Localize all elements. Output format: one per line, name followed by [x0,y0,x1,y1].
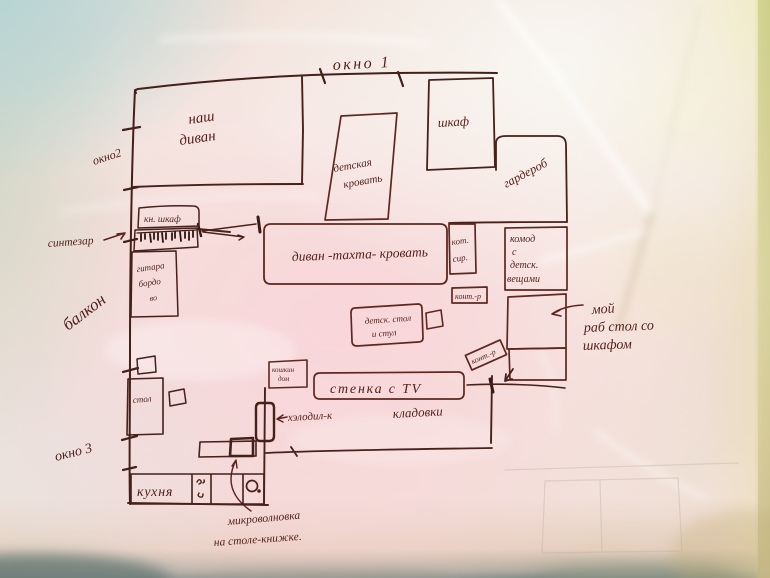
svg-text:и стул: и стул [371,327,396,339]
svg-text:шкафом: шкафом [583,337,632,354]
svg-text:окно 1: окно 1 [332,54,391,74]
svg-text:вещами: вещами [507,274,540,285]
svg-text:кухня: кухня [137,485,173,500]
svg-text:сир.: сир. [452,252,468,264]
svg-text:окно2: окно2 [91,145,123,167]
svg-text:хэлодил-к: хэлодил-к [287,410,334,424]
svg-text:на столе-книжке.: на столе-книжке. [213,531,302,549]
svg-text:наш: наш [187,108,215,127]
svg-text:кровать: кровать [342,172,383,191]
svg-text:кот.: кот. [451,235,469,247]
svg-text:конт.-р: конт.-р [455,292,481,301]
svg-text:гардероб: гардероб [501,155,550,190]
svg-text:с: с [512,247,517,258]
svg-text:детск.: детск. [510,260,538,271]
svg-text:комод: комод [510,234,535,245]
svg-text:детская: детская [332,156,372,175]
svg-text:кошкин: кошкин [272,366,295,374]
svg-text:шкаф: шкаф [437,113,469,130]
svg-text:детск. стол: детск. стол [364,313,411,326]
svg-text:бордо: бордо [138,276,162,289]
svg-text:раб стол со: раб стол со [583,319,654,336]
svg-text:гитара: гитара [136,260,166,274]
svg-text:стол: стол [132,393,152,405]
svg-text:кн. шкаф: кн. шкаф [144,214,181,225]
svg-text:диван: диван [178,128,216,149]
svg-text:мой: мой [590,301,615,318]
svg-text:окно 3: окно 3 [53,441,94,465]
svg-text:балкон: балкон [59,290,109,334]
svg-text:во: во [149,293,158,303]
svg-text:стенка с TV: стенка с TV [330,382,422,397]
svg-text:микроволновка: микроволновка [226,510,301,528]
svg-text:синтезар: синтезар [47,235,94,250]
svg-text:диван -тахта- кровать: диван -тахта- кровать [292,244,429,264]
svg-text:конт.-р: конт.-р [470,347,497,366]
svg-text:дом: дом [278,375,290,383]
svg-text:кладовки: кладовки [392,403,443,421]
